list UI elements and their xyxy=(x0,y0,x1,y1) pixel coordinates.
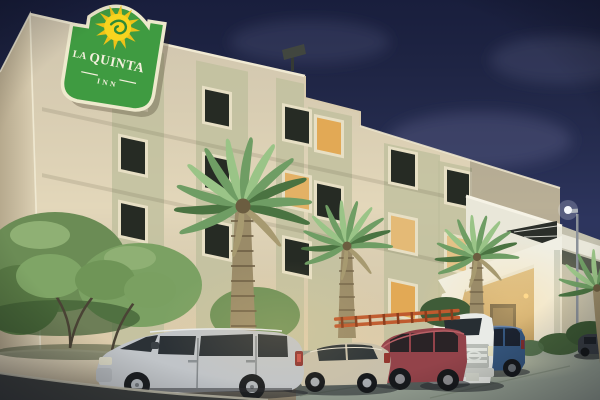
scene-canvas: LA QUINTA INN xyxy=(0,0,600,400)
photo-la-quinta-inn: LA QUINTA INN xyxy=(0,0,600,400)
vignette xyxy=(0,0,600,400)
